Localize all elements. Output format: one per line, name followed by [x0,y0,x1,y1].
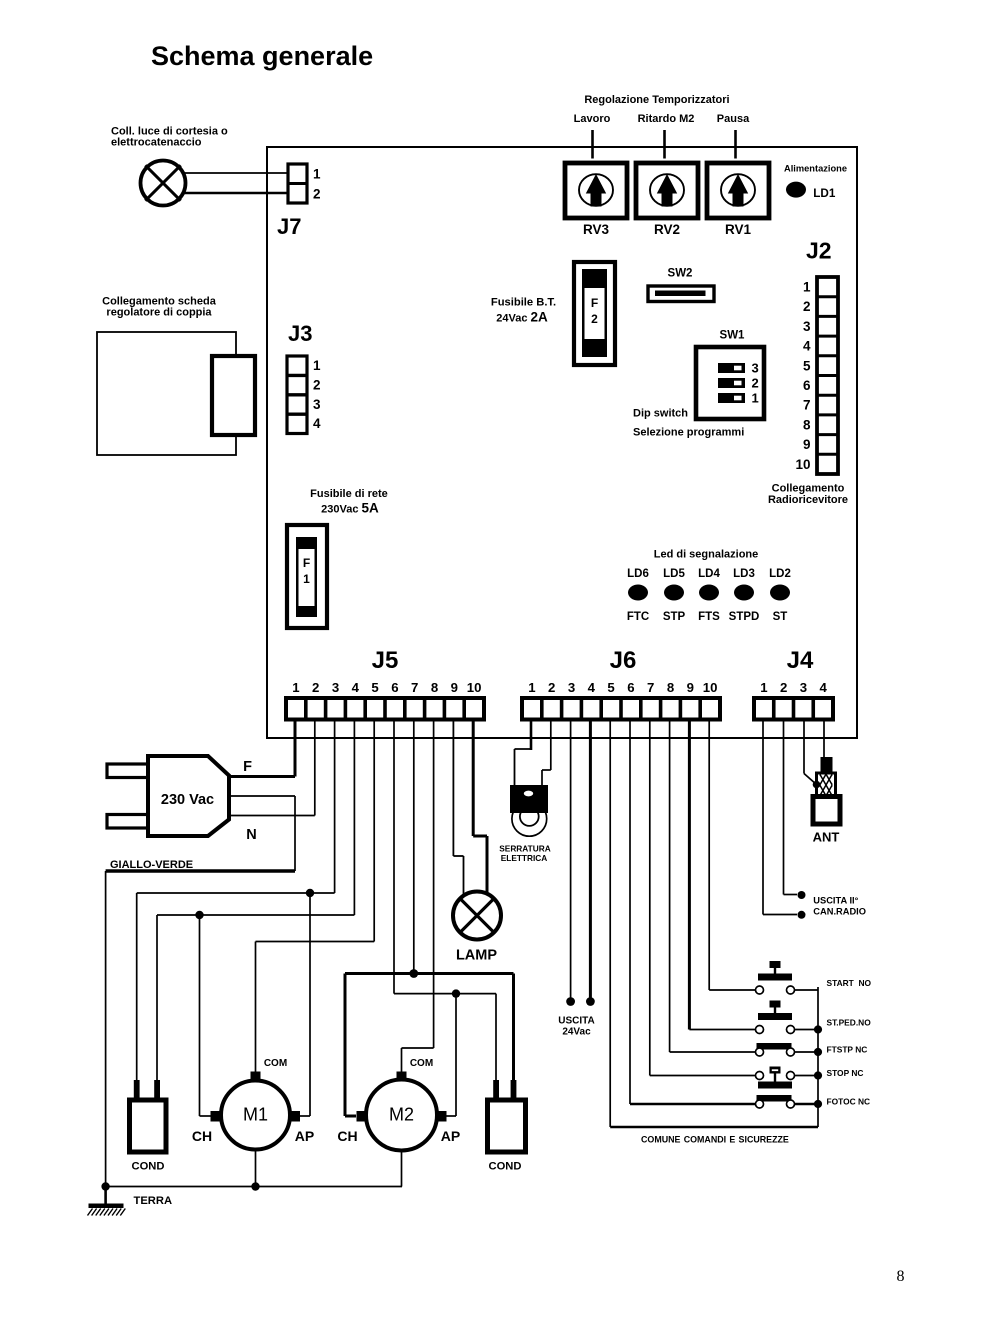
svg-text:2: 2 [780,680,787,695]
svg-text:Collegamento: Collegamento [772,483,845,495]
svg-text:Fusibile B.T.: Fusibile B.T. [491,297,556,309]
svg-text:3: 3 [800,680,807,695]
svg-text:Pausa: Pausa [717,113,750,125]
svg-text:Radioricevitore: Radioricevitore [768,494,848,506]
svg-text:10: 10 [467,680,482,695]
svg-text:Selezione programmi: Selezione programmi [633,427,744,439]
svg-text:7: 7 [411,680,418,695]
svg-text:1: 1 [803,280,811,295]
svg-text:SW1: SW1 [720,330,746,342]
svg-text:N: N [246,827,256,843]
svg-text:4: 4 [819,680,827,695]
svg-text:7: 7 [803,398,811,413]
svg-text:Schema generale: Schema generale [151,41,373,71]
svg-text:J2: J2 [806,238,832,264]
svg-text:ST.PED.NO: ST.PED.NO [827,1018,872,1028]
svg-text:9: 9 [687,680,694,695]
svg-text:START NO: START NO [827,978,872,988]
svg-text:8: 8 [803,417,811,432]
svg-text:3: 3 [803,319,811,334]
svg-text:2: 2 [752,376,759,391]
svg-text:GIALLO-VERDE: GIALLO-VERDE [110,859,193,871]
svg-text:Ritardo M2: Ritardo M2 [638,113,695,125]
svg-text:2: 2 [313,187,321,202]
svg-text:4: 4 [803,339,811,354]
svg-text:1: 1 [760,680,767,695]
svg-text:RV2: RV2 [654,222,680,237]
svg-text:RV3: RV3 [583,222,610,237]
svg-text:CAN.RADIO: CAN.RADIO [813,906,866,916]
svg-text:2: 2 [803,299,811,314]
svg-text:COM: COM [410,1058,433,1069]
svg-text:COM: COM [264,1058,287,1069]
svg-text:STOP NC: STOP NC [827,1068,864,1078]
svg-text:4: 4 [352,680,360,695]
svg-text:24Vac 2A: 24Vac 2A [496,310,548,325]
svg-text:AP: AP [295,1128,314,1144]
svg-text:M2: M2 [389,1105,414,1125]
svg-text:COND: COND [132,1160,165,1172]
svg-text:Lavoro: Lavoro [574,113,611,125]
svg-text:Alimentazione: Alimentazione [784,163,847,173]
svg-text:USCITA II°: USCITA II° [813,896,858,906]
svg-text:AP: AP [441,1128,460,1144]
svg-text:LD4: LD4 [698,568,720,580]
svg-text:J4: J4 [787,647,814,674]
svg-text:LD2: LD2 [769,568,791,580]
svg-text:ELETTRICA: ELETTRICA [501,853,548,863]
svg-text:STPD: STPD [729,611,760,623]
svg-text:1: 1 [752,391,759,406]
svg-text:3: 3 [332,680,339,695]
svg-text:8: 8 [667,680,674,695]
svg-text:6: 6 [627,680,634,695]
svg-text:3: 3 [313,397,321,412]
svg-text:8: 8 [897,1268,905,1285]
svg-text:1: 1 [303,572,310,586]
svg-text:5: 5 [803,358,811,373]
svg-text:2: 2 [313,377,321,392]
svg-text:7: 7 [647,680,654,695]
svg-text:F: F [591,296,598,310]
svg-text:Fusibile di rete: Fusibile di rete [310,488,388,500]
svg-text:USCITA: USCITA [558,1016,594,1027]
svg-text:STP: STP [663,611,686,623]
svg-text:3: 3 [752,361,759,376]
svg-text:3: 3 [568,680,575,695]
svg-text:FTSTP NC: FTSTP NC [827,1045,868,1055]
svg-text:6: 6 [391,680,398,695]
svg-text:6: 6 [803,378,811,393]
svg-text:230Vac 5A: 230Vac 5A [321,501,379,516]
svg-text:1: 1 [313,167,321,182]
svg-text:5: 5 [607,680,614,695]
svg-text:CH: CH [337,1128,357,1144]
svg-text:ANT: ANT [813,830,840,845]
svg-text:9: 9 [451,680,458,695]
svg-text:2: 2 [312,680,319,695]
svg-text:LAMP: LAMP [456,948,497,964]
svg-text:9: 9 [803,437,811,452]
svg-text:SW2: SW2 [668,268,693,280]
svg-text:1: 1 [528,680,535,695]
svg-text:CH: CH [192,1128,212,1144]
svg-text:10: 10 [795,457,810,472]
svg-text:8: 8 [431,680,438,695]
svg-text:LD5: LD5 [663,568,685,580]
svg-text:LD1: LD1 [813,187,836,200]
svg-text:1: 1 [313,358,321,373]
svg-text:FTC: FTC [627,611,649,623]
svg-text:RV1: RV1 [725,222,752,237]
svg-text:F: F [243,759,252,775]
svg-text:LD6: LD6 [627,568,649,580]
svg-text:FTS: FTS [698,611,720,623]
svg-text:5: 5 [371,680,378,695]
svg-text:4: 4 [313,416,321,431]
svg-text:regolatore di coppia: regolatore di coppia [106,307,212,319]
svg-text:Dip switch: Dip switch [633,408,688,420]
svg-text:COND: COND [489,1160,522,1172]
svg-text:COMUNE COMANDI E SICUREZZE: COMUNE COMANDI E SICUREZZE [641,1134,789,1144]
svg-text:elettrocatenaccio: elettrocatenaccio [111,137,202,149]
svg-text:230 Vac: 230 Vac [161,792,214,808]
svg-text:24Vac: 24Vac [562,1027,591,1038]
svg-text:FOTOC NC: FOTOC NC [827,1097,871,1107]
svg-text:10: 10 [703,680,718,695]
svg-text:M1: M1 [243,1105,268,1125]
svg-text:1: 1 [292,680,299,695]
svg-text:TERRA: TERRA [134,1195,173,1207]
svg-text:2: 2 [548,680,555,695]
svg-text:ST: ST [773,611,788,623]
svg-text:Regolazione Temporizzatori: Regolazione Temporizzatori [584,94,729,106]
svg-text:J3: J3 [288,321,312,346]
svg-text:LD3: LD3 [733,568,755,580]
svg-text:2: 2 [591,312,598,326]
svg-text:J6: J6 [610,647,637,674]
svg-text:F: F [303,556,310,570]
svg-text:J5: J5 [372,647,399,674]
svg-text:4: 4 [588,680,596,695]
svg-text:Led di segnalazione: Led di segnalazione [654,549,759,561]
svg-text:J7: J7 [277,214,301,239]
